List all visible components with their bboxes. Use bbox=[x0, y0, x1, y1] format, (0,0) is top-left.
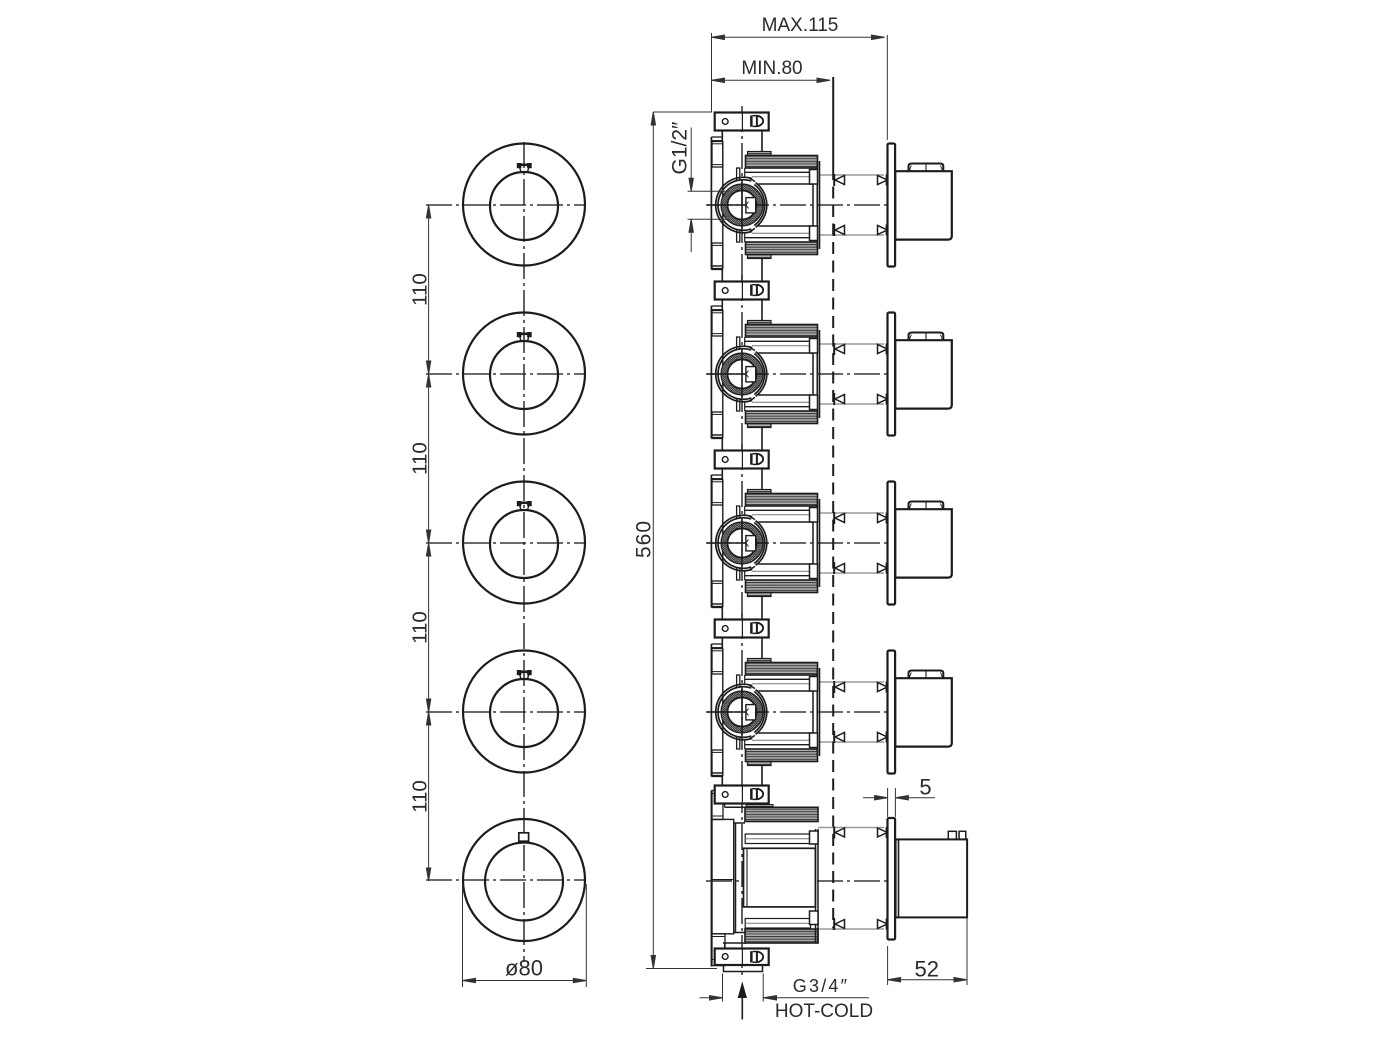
svg-text:110: 110 bbox=[409, 442, 432, 475]
svg-text:110: 110 bbox=[409, 780, 432, 813]
svg-text:G1/2″: G1/2″ bbox=[669, 121, 692, 175]
svg-text:ø80: ø80 bbox=[505, 956, 543, 981]
svg-text:52: 52 bbox=[914, 957, 938, 982]
svg-text:560: 560 bbox=[633, 520, 656, 558]
svg-text:HOT-COLD: HOT-COLD bbox=[775, 1001, 873, 1022]
svg-text:110: 110 bbox=[409, 273, 432, 306]
svg-text:MAX.115: MAX.115 bbox=[762, 15, 839, 36]
svg-text:5: 5 bbox=[919, 775, 931, 800]
svg-text:G3/4″: G3/4″ bbox=[793, 976, 849, 996]
svg-text:MIN.80: MIN.80 bbox=[741, 58, 802, 79]
svg-text:110: 110 bbox=[409, 611, 432, 644]
